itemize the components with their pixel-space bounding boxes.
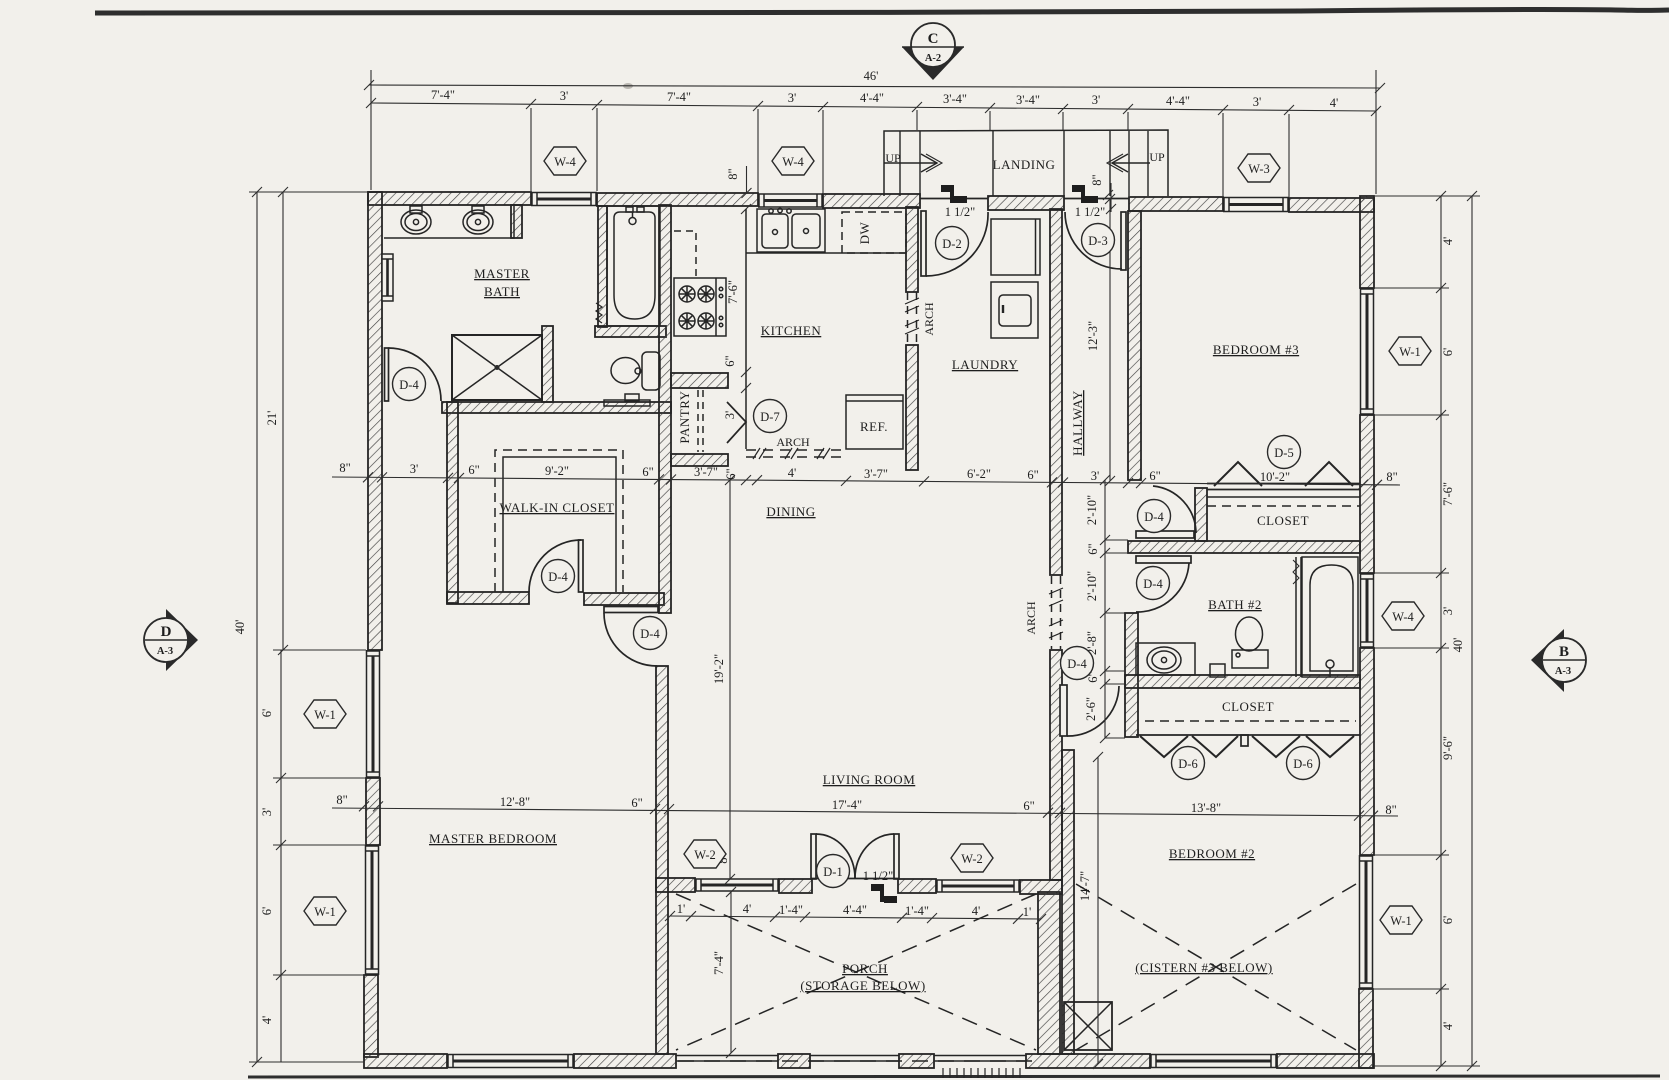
svg-text:2'-6": 2'-6"	[1084, 697, 1098, 721]
svg-text:2'-10": 2'-10"	[1085, 571, 1099, 601]
svg-text:A-2: A-2	[925, 53, 941, 64]
svg-text:4'-4": 4'-4"	[843, 903, 867, 917]
svg-text:2'-10": 2'-10"	[1085, 495, 1099, 525]
svg-text:6": 6"	[468, 463, 479, 477]
svg-text:C: C	[928, 31, 939, 47]
svg-text:W-2: W-2	[694, 848, 716, 862]
svg-text:WALK-IN CLOSET: WALK-IN CLOSET	[500, 500, 615, 515]
svg-text:A-3: A-3	[157, 646, 173, 657]
svg-text:W-4: W-4	[554, 155, 576, 169]
svg-text:8": 8"	[726, 168, 740, 179]
svg-text:DW: DW	[857, 221, 872, 244]
svg-text:D-4: D-4	[399, 378, 419, 392]
svg-text:4': 4'	[1441, 237, 1455, 246]
svg-text:17'-4": 17'-4"	[832, 798, 862, 812]
svg-text:W-1: W-1	[1399, 345, 1421, 359]
svg-text:D-5: D-5	[1274, 446, 1293, 460]
svg-text:W-3: W-3	[1248, 162, 1270, 176]
svg-text:19'-2": 19'-2"	[712, 654, 726, 684]
svg-text:3'-4": 3'-4"	[1016, 93, 1040, 107]
svg-text:CLOSET: CLOSET	[1257, 513, 1309, 528]
svg-text:3': 3'	[1092, 93, 1101, 107]
svg-text:12'-8": 12'-8"	[500, 795, 530, 809]
svg-text:D-3: D-3	[1088, 234, 1107, 248]
svg-text:A-3: A-3	[1555, 666, 1571, 677]
svg-text:6': 6'	[1441, 348, 1455, 357]
svg-text:3': 3'	[560, 89, 569, 103]
svg-text:W-1: W-1	[314, 905, 336, 919]
svg-text:7'-6": 7'-6"	[726, 280, 740, 304]
svg-text:UP: UP	[885, 151, 901, 165]
svg-text:D-4: D-4	[1144, 510, 1164, 524]
svg-text:HALLWAY: HALLWAY	[1070, 390, 1085, 456]
svg-text:13'-8": 13'-8"	[1191, 801, 1221, 815]
svg-text:(CISTERN #3 BELOW): (CISTERN #3 BELOW)	[1135, 960, 1273, 975]
svg-text:12'-3": 12'-3"	[1086, 321, 1100, 351]
svg-text:D-4: D-4	[1067, 657, 1087, 671]
svg-text:8": 8"	[339, 461, 350, 475]
svg-text:D-4: D-4	[1143, 577, 1163, 591]
svg-text:3'-7": 3'-7"	[864, 467, 888, 481]
svg-text:8": 8"	[1090, 174, 1104, 185]
svg-text:D-2: D-2	[942, 237, 961, 251]
svg-text:6": 6"	[642, 465, 653, 479]
svg-text:D-4: D-4	[640, 627, 660, 641]
svg-text:3'-4": 3'-4"	[943, 92, 967, 106]
svg-text:3': 3'	[723, 411, 737, 420]
svg-text:1': 1'	[677, 902, 686, 916]
svg-text:ARCH: ARCH	[1024, 601, 1038, 635]
svg-text:6': 6'	[1441, 916, 1455, 925]
svg-text:LANDING: LANDING	[993, 157, 1056, 172]
svg-text:8": 8"	[336, 793, 347, 807]
svg-text:ARCH: ARCH	[922, 302, 936, 336]
svg-text:CLOSET: CLOSET	[1222, 699, 1274, 714]
svg-text:MASTER BEDROOM: MASTER BEDROOM	[429, 831, 557, 846]
svg-text:1'-4": 1'-4"	[905, 904, 929, 918]
svg-text:D-6: D-6	[1293, 757, 1312, 771]
svg-text:BEDROOM #2: BEDROOM #2	[1169, 846, 1255, 861]
svg-text:6': 6'	[260, 709, 274, 718]
svg-text:8": 8"	[1385, 803, 1396, 817]
svg-text:40': 40'	[1451, 638, 1465, 653]
svg-text:6'-2": 6'-2"	[967, 467, 991, 481]
svg-text:3'-7": 3'-7"	[694, 465, 718, 479]
svg-text:BATH: BATH	[484, 284, 520, 299]
svg-text:4': 4'	[260, 1016, 274, 1025]
svg-text:21': 21'	[265, 411, 279, 426]
svg-text:40': 40'	[233, 620, 247, 635]
svg-text:W-1: W-1	[314, 708, 336, 722]
svg-text:7'-4": 7'-4"	[712, 951, 726, 975]
svg-text:7'-6": 7'-6"	[1441, 482, 1455, 506]
svg-text:10'-2": 10'-2"	[1260, 470, 1290, 484]
svg-text:ARCH: ARCH	[776, 435, 810, 449]
svg-text:6": 6"	[1027, 468, 1038, 482]
svg-text:4'-4": 4'-4"	[860, 91, 884, 105]
svg-text:1'-4": 1'-4"	[779, 903, 803, 917]
svg-text:3': 3'	[1091, 469, 1100, 483]
svg-text:W-1: W-1	[1390, 914, 1412, 928]
svg-text:14'-7": 14'-7"	[1078, 871, 1092, 901]
svg-text:REF.: REF.	[860, 419, 888, 434]
svg-text:4': 4'	[972, 904, 981, 918]
svg-text:D-1: D-1	[823, 865, 842, 879]
svg-text:4'-4": 4'-4"	[1166, 94, 1190, 108]
svg-text:6": 6"	[1023, 799, 1034, 813]
svg-text:3': 3'	[788, 91, 797, 105]
svg-text:7'-4": 7'-4"	[667, 90, 691, 104]
svg-text:D-7: D-7	[760, 410, 779, 424]
svg-text:B: B	[1559, 644, 1569, 660]
svg-text:PANTRY: PANTRY	[677, 390, 692, 443]
svg-text:UP: UP	[1149, 150, 1165, 164]
svg-text:PORCH: PORCH	[842, 961, 888, 976]
svg-text:DINING: DINING	[766, 504, 815, 519]
svg-text:6": 6"	[1086, 543, 1100, 554]
svg-text:(STORAGE BELOW): (STORAGE BELOW)	[800, 978, 925, 993]
svg-text:D: D	[161, 624, 172, 640]
svg-text:MASTER: MASTER	[474, 266, 530, 281]
svg-text:D-6: D-6	[1178, 757, 1197, 771]
svg-text:1': 1'	[1023, 905, 1032, 919]
svg-text:46': 46'	[864, 69, 879, 83]
svg-text:1 1/2": 1 1/2"	[863, 869, 893, 883]
svg-text:7'-4": 7'-4"	[431, 88, 455, 102]
svg-text:KITCHEN: KITCHEN	[761, 323, 822, 338]
svg-text:3': 3'	[1253, 95, 1262, 109]
svg-text:3': 3'	[260, 808, 274, 817]
svg-text:6": 6"	[724, 468, 738, 479]
svg-text:W-2: W-2	[961, 852, 983, 866]
svg-text:BATH #2: BATH #2	[1208, 597, 1262, 612]
svg-text:9'-6": 9'-6"	[1441, 736, 1455, 760]
svg-text:6': 6'	[260, 907, 274, 916]
svg-text:1 1/2": 1 1/2"	[1075, 205, 1105, 219]
svg-text:W-4: W-4	[1392, 610, 1414, 624]
svg-text:BEDROOM #3: BEDROOM #3	[1213, 342, 1299, 357]
svg-text:3': 3'	[1441, 607, 1455, 616]
svg-text:D-4: D-4	[548, 570, 568, 584]
svg-text:6": 6"	[1149, 469, 1160, 483]
svg-text:4': 4'	[743, 902, 752, 916]
svg-text:4': 4'	[1441, 1022, 1455, 1031]
svg-text:9'-2": 9'-2"	[545, 464, 569, 478]
svg-text:3': 3'	[410, 462, 419, 476]
svg-text:1 1/2": 1 1/2"	[945, 205, 975, 219]
svg-text:LIVING ROOM: LIVING ROOM	[823, 772, 916, 787]
svg-text:LAUNDRY: LAUNDRY	[952, 357, 1018, 372]
svg-text:W-4: W-4	[782, 155, 804, 169]
svg-text:4': 4'	[788, 466, 797, 480]
svg-text:4': 4'	[1330, 96, 1339, 110]
svg-text:6": 6"	[723, 355, 737, 366]
svg-text:8": 8"	[1386, 470, 1397, 484]
svg-text:6": 6"	[631, 796, 642, 810]
